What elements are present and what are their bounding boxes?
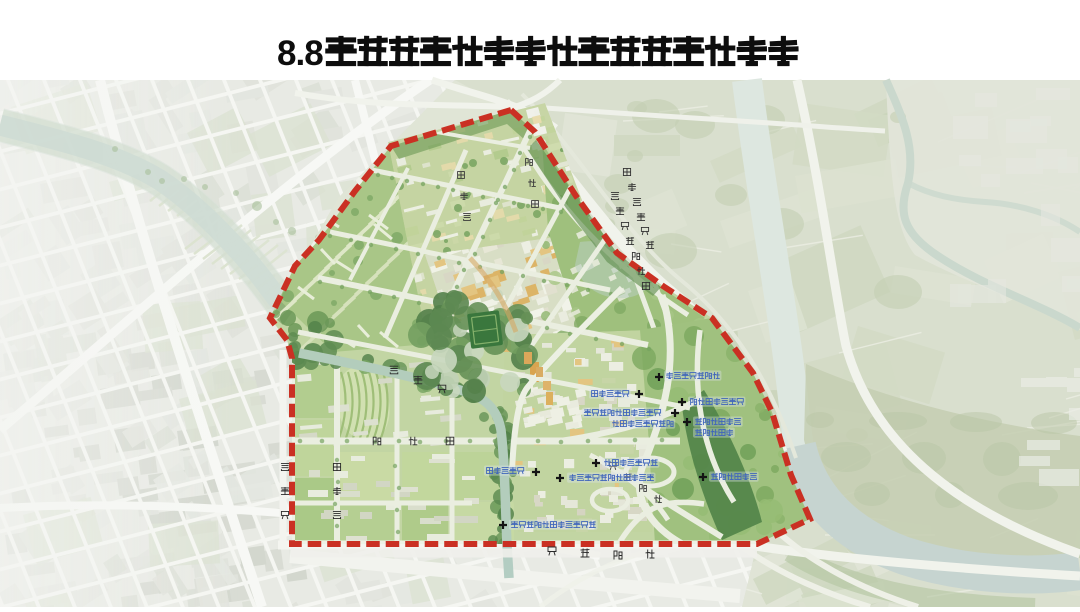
svg-text:8.8: 8.8 <box>277 34 323 73</box>
